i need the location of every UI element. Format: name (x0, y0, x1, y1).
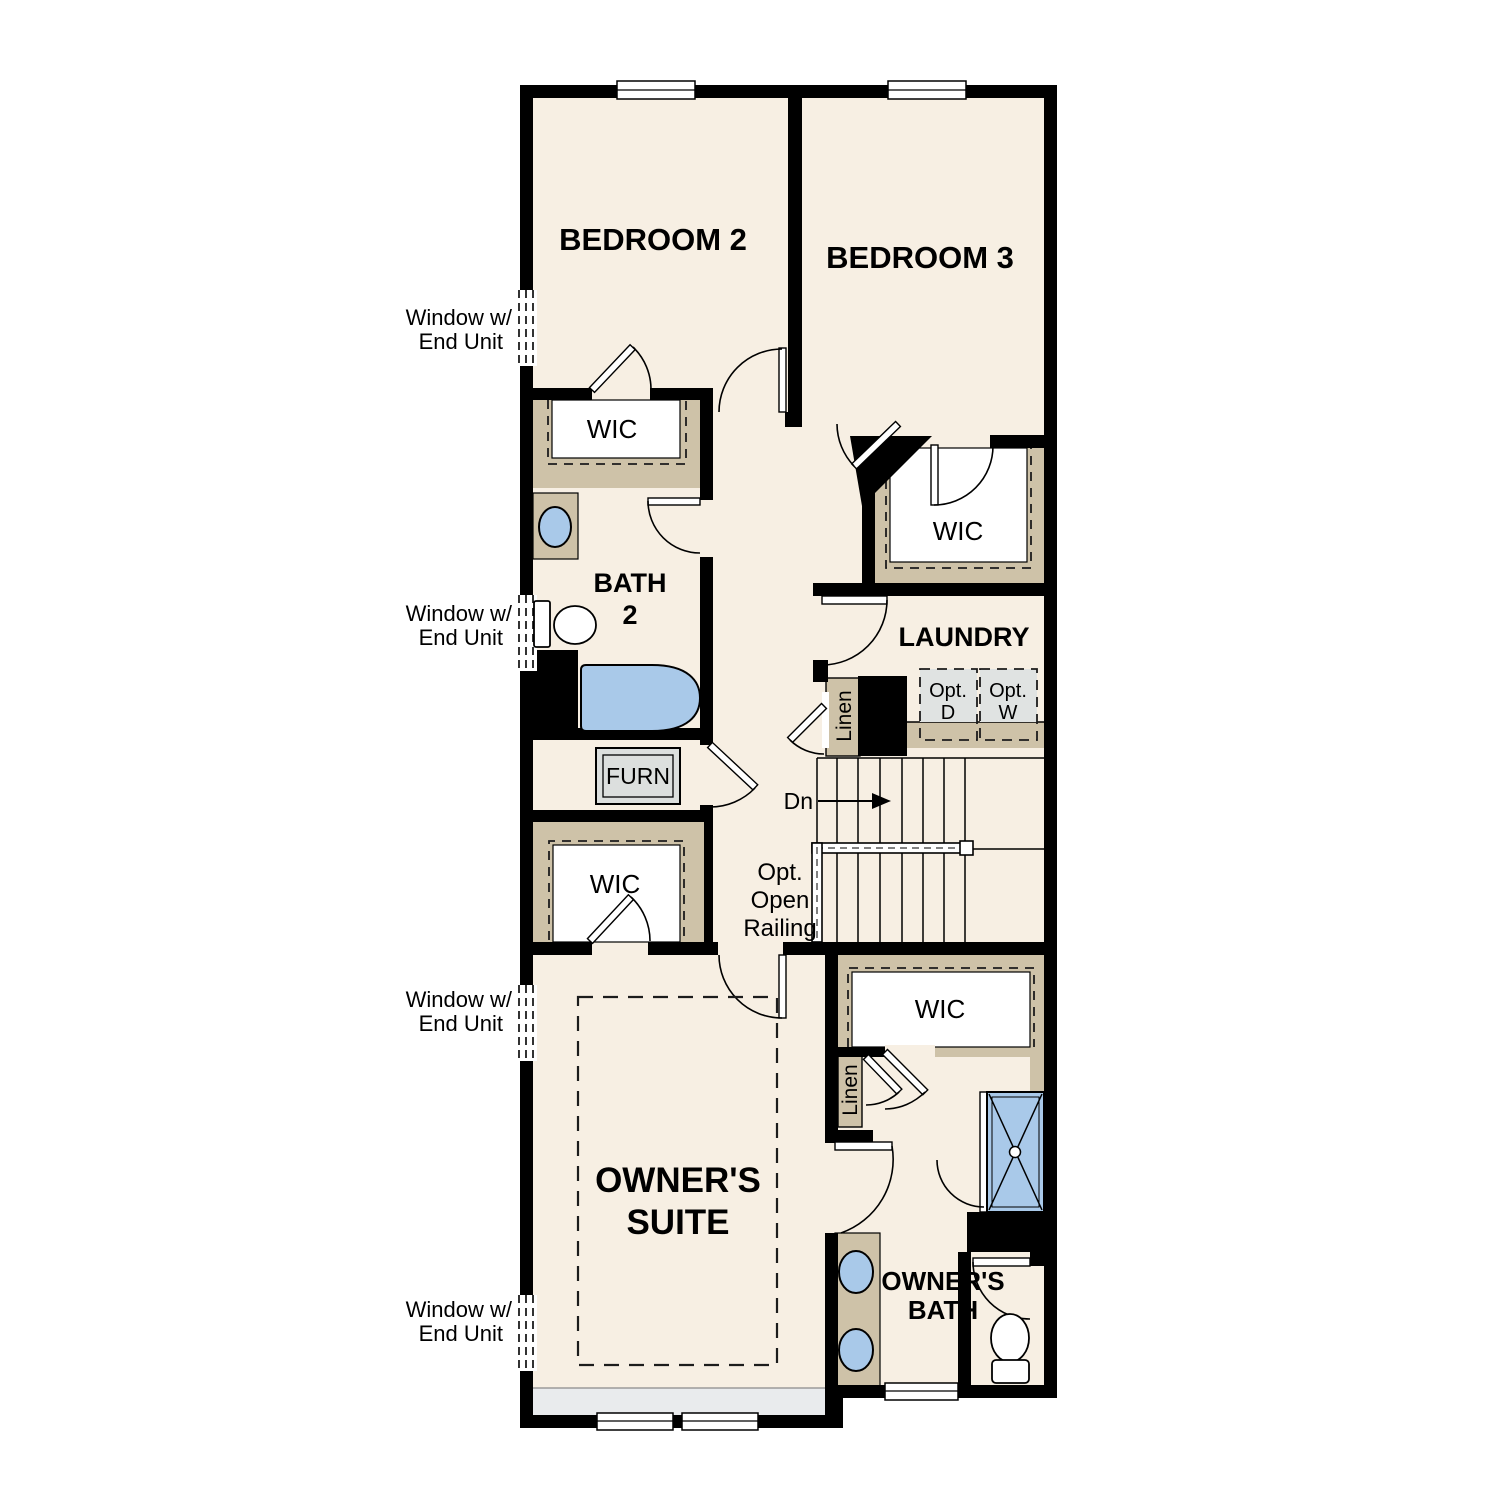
window-top-bedroom3 (888, 81, 966, 99)
window-end-unit-1 (515, 290, 537, 366)
bath2-label-line2: 2 (622, 600, 637, 630)
window-end-unit-label1-line1: Window w/ (406, 305, 513, 330)
bedroom3-label: BEDROOM 3 (826, 240, 1014, 275)
wic-label-bedroom3: WIC (933, 516, 984, 546)
wic-label-owners-left: WIC (590, 869, 641, 899)
window-bottom-suite-2 (682, 1413, 758, 1430)
opt-open-railing-line2: Open (751, 887, 810, 914)
window-end-unit-label3-line2: End Unit (419, 1011, 503, 1036)
owners-sink-2 (839, 1329, 873, 1371)
opt-dryer-label-line1: Opt. (929, 680, 967, 702)
owners-suite-bottom-strip (533, 1388, 830, 1415)
owners-sink-1 (839, 1251, 873, 1293)
opt-dryer-label-line2: D (941, 702, 955, 724)
window-end-unit-label3-line1: Window w/ (406, 987, 513, 1012)
bedroom2-label: BEDROOM 2 (559, 222, 747, 257)
owners-bath-label-line2: BATH (908, 1295, 978, 1325)
owners-suite-label-line2: SUITE (626, 1203, 729, 1242)
window-end-unit-4 (515, 1295, 537, 1371)
owners-suite-label-line1: OWNER'S (595, 1161, 761, 1200)
bathtub (581, 665, 700, 731)
owners-bath-label-line1: OWNER'S (881, 1266, 1004, 1296)
wic-label-bedroom2: WIC (587, 414, 638, 444)
owners-toilet (991, 1314, 1029, 1383)
opt-washer-label-line1: Opt. (989, 680, 1027, 702)
bath2-sink (539, 507, 571, 547)
linen2-label: Linen (839, 1064, 862, 1115)
window-end-unit-label2-line1: Window w/ (406, 601, 513, 626)
window-bottom-suite-1 (597, 1413, 673, 1430)
laundry-label: LAUNDRY (899, 622, 1030, 652)
window-end-unit-label4-line1: Window w/ (406, 1297, 513, 1322)
floor-plan-svg: BEDROOM 2 BEDROOM 3 WIC BATH 2 WIC LAUND… (0, 0, 1500, 1500)
floor-plan-page: BEDROOM 2 BEDROOM 3 WIC BATH 2 WIC LAUND… (0, 0, 1500, 1500)
bath2-label-line1: BATH (594, 568, 667, 598)
opt-washer-label-line2: W (999, 702, 1018, 724)
opt-open-railing-line1: Opt. (757, 859, 802, 886)
window-end-unit-label2-line2: End Unit (419, 625, 503, 650)
window-top-bedroom2 (617, 81, 695, 99)
opt-open-railing-line3: Railing (743, 915, 816, 942)
stairs-down-label: Dn (784, 788, 813, 814)
window-end-unit-3 (515, 985, 537, 1061)
linen1-label: Linen (833, 690, 856, 741)
wic-label-owners-right: WIC (915, 994, 966, 1024)
window-bottom-owners-bath (885, 1383, 958, 1400)
shower (987, 1092, 1044, 1212)
window-end-unit-label4-line2: End Unit (419, 1321, 503, 1346)
furnace-label: FURN (606, 763, 670, 789)
window-end-unit-label1-line2: End Unit (419, 329, 503, 354)
